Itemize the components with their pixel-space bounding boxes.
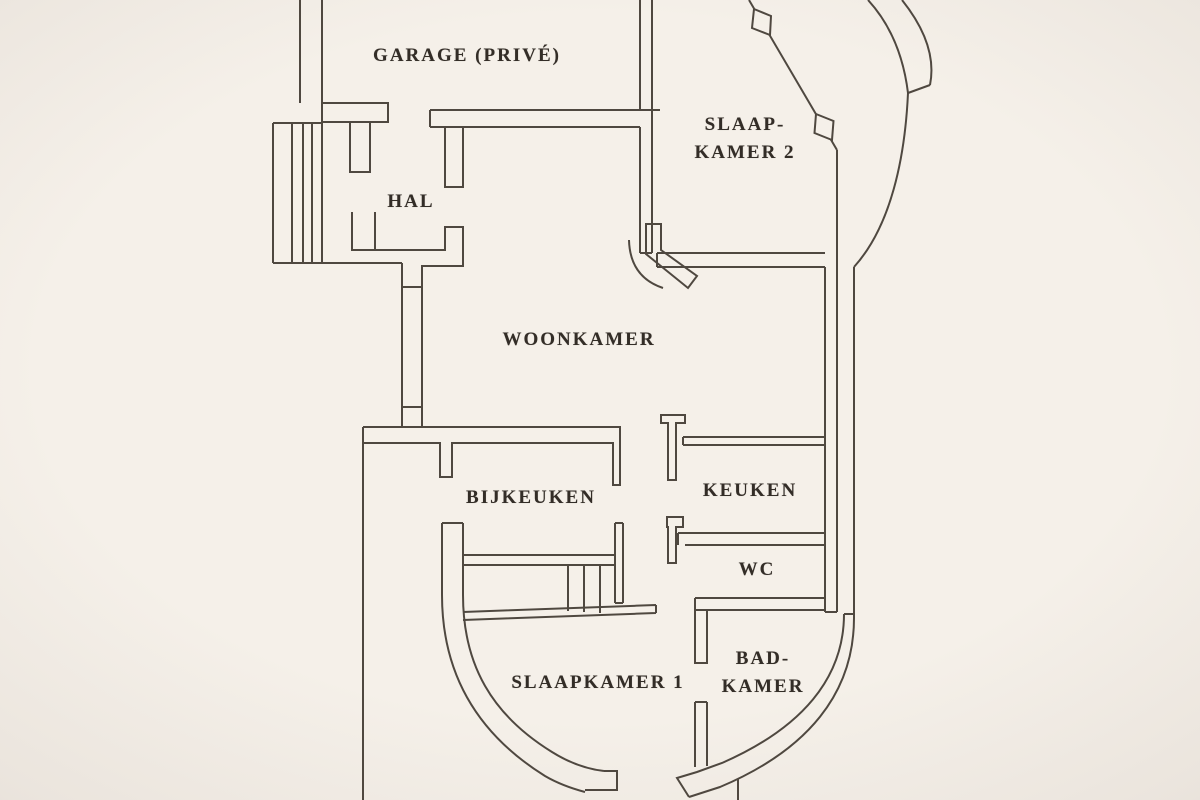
room-label-badkamer: BAD-KAMER	[722, 645, 805, 701]
floorplan-canvas: GARAGE (PRIVÉ)SLAAP-KAMER 2HALWOONKAMERB…	[0, 0, 1200, 800]
room-label-line: WC	[739, 556, 776, 584]
room-label-hal: HAL	[387, 188, 434, 216]
room-label-line: HAL	[387, 188, 434, 216]
room-label-line: WOONKAMER	[502, 326, 655, 354]
room-labels: GARAGE (PRIVÉ)SLAAP-KAMER 2HALWOONKAMERB…	[0, 0, 1200, 800]
room-label-line: SLAAP-	[694, 111, 795, 139]
room-label-garage: GARAGE (PRIVÉ)	[373, 42, 561, 70]
room-label-slaapkamer-2: SLAAP-KAMER 2	[694, 111, 795, 167]
room-label-line: BAD-	[722, 645, 805, 673]
room-label-wc: WC	[739, 556, 776, 584]
room-label-bijkeuken: BIJKEUKEN	[466, 484, 596, 512]
room-label-line: KAMER 2	[694, 139, 795, 167]
room-label-line: SLAAPKAMER 1	[511, 669, 684, 697]
room-label-line: GARAGE (PRIVÉ)	[373, 42, 561, 70]
room-label-keuken: KEUKEN	[703, 477, 797, 505]
room-label-line: KEUKEN	[703, 477, 797, 505]
room-label-woonkamer: WOONKAMER	[502, 326, 655, 354]
room-label-slaapkamer-1: SLAAPKAMER 1	[511, 669, 684, 697]
room-label-line: BIJKEUKEN	[466, 484, 596, 512]
room-label-line: KAMER	[722, 673, 805, 701]
